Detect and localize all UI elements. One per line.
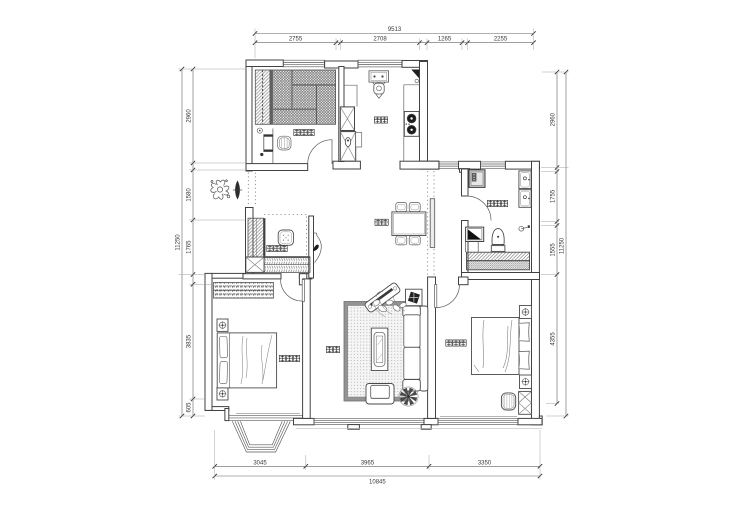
svg-text:11250: 11250 [176, 234, 182, 251]
svg-text:1755: 1755 [550, 189, 556, 203]
svg-text:3045: 3045 [253, 460, 267, 466]
svg-text:2255: 2255 [494, 37, 508, 43]
svg-text:3350: 3350 [478, 460, 492, 466]
svg-text:2755: 2755 [289, 37, 303, 43]
svg-text:1765: 1765 [187, 240, 193, 254]
svg-text:3835: 3835 [187, 334, 193, 348]
svg-text:11250: 11250 [559, 237, 565, 254]
svg-text:1580: 1580 [187, 188, 193, 202]
svg-text:4355: 4355 [550, 332, 556, 346]
svg-text:2960: 2960 [187, 109, 193, 123]
svg-text:2960: 2960 [550, 112, 556, 126]
svg-text:1265: 1265 [438, 37, 452, 43]
svg-text:10845: 10845 [369, 480, 386, 486]
svg-text:2708: 2708 [373, 37, 387, 43]
svg-text:9513: 9513 [388, 27, 402, 33]
svg-text:1555: 1555 [550, 243, 556, 257]
svg-text:605: 605 [187, 402, 193, 413]
svg-text:3965: 3965 [361, 460, 375, 466]
